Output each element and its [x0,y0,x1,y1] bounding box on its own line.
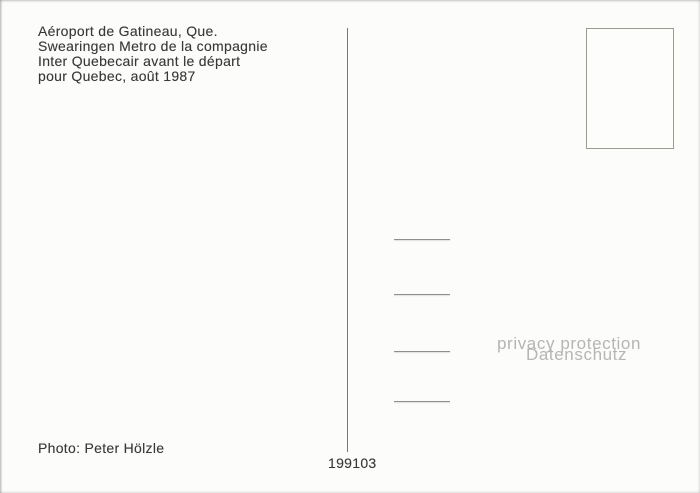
caption-line: Swearingen Metro de la compagnie [38,39,268,54]
address-line [394,294,450,295]
photo-credit: Photo: Peter Hölzle [38,440,164,456]
address-line [394,351,450,352]
postcard-back: Aéroport de Gatineau, Que. Swearingen Me… [0,0,700,493]
stamp-box [586,28,674,149]
card-number: 199103 [328,455,377,471]
watermark-line-2: Datenschutz [526,346,627,364]
address-line [394,401,450,402]
center-divider-line [347,28,348,452]
caption-block: Aéroport de Gatineau, Que. Swearingen Me… [38,24,268,84]
address-line [394,239,450,240]
caption-line: pour Quebec, août 1987 [38,69,268,84]
caption-line: Aéroport de Gatineau, Que. [38,24,268,39]
caption-line: Inter Quebecair avant le départ [38,54,268,69]
